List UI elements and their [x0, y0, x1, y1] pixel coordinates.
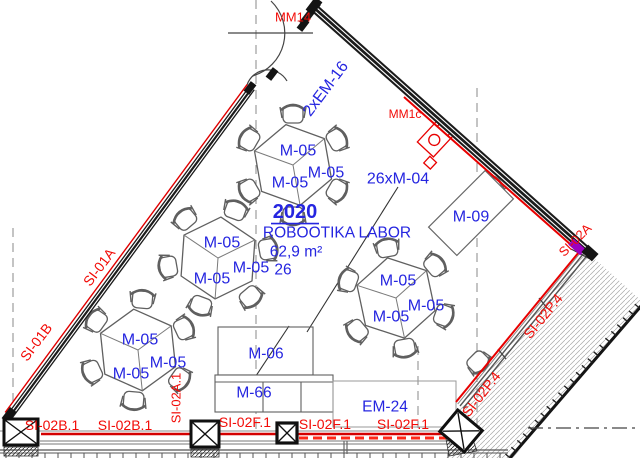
label-m-05: M-05 — [373, 309, 410, 326]
floor-plan-svg: MM142xEM-16MM1cM-05M-05M-0526xM-04M-0920… — [0, 0, 640, 458]
chair — [171, 313, 198, 344]
label-si-02f-1: SI-02F.1 — [299, 416, 351, 432]
label-m-09: M-09 — [453, 209, 490, 226]
label-m-06: M-06 — [248, 346, 283, 363]
label-m-05: M-05 — [113, 366, 150, 383]
label-si-02a-1: SI-02A.1 — [169, 373, 184, 424]
chair — [129, 289, 156, 309]
label-26: 26 — [274, 262, 291, 279]
cabinet-m66 — [215, 375, 333, 412]
label-m-05: M-05 — [233, 260, 270, 277]
label-m-66: M-66 — [236, 385, 271, 402]
label-si-02f-1: SI-02F.1 — [377, 416, 429, 432]
label-2020: 2020 — [273, 201, 318, 223]
label-m-05: M-05 — [150, 355, 187, 372]
label-26xm-04: 26xM-04 — [367, 171, 429, 188]
label-m-05: M-05 — [380, 273, 417, 290]
chair — [78, 356, 105, 387]
label-si-02f-1: SI-02F.1 — [219, 414, 271, 430]
label-mm14: MM14 — [275, 10, 311, 25]
bottom-wall — [0, 431, 508, 454]
label-mm1c: MM1c — [389, 107, 422, 121]
label-m-05: M-05 — [408, 298, 445, 315]
label-m-05: M-05 — [194, 271, 231, 288]
label-62-9-m-: 62,9 m² — [270, 244, 323, 261]
label-m-05: M-05 — [272, 175, 309, 192]
chair — [335, 265, 361, 296]
label-m-05: M-05 — [204, 235, 241, 252]
label-2xem-16: 2xEM-16 — [300, 58, 352, 119]
chair — [390, 337, 419, 359]
label-robootika-labor: ROBOOTIKA LABOR — [263, 225, 411, 242]
label-si-02b-1: SI-02B.1 — [98, 417, 153, 433]
chair — [120, 391, 147, 411]
label-m-05: M-05 — [122, 332, 159, 349]
label-m-05: M-05 — [280, 143, 317, 160]
label-m-05: M-05 — [308, 165, 345, 182]
label-em-24: EM-24 — [362, 399, 408, 416]
floor-plan: MM142xEM-16MM1cM-05M-05M-0526xM-04M-0920… — [0, 0, 640, 458]
facade-ticks — [6, 453, 500, 458]
label-si-02b-1: SI-02B.1 — [25, 417, 80, 433]
chair — [157, 252, 179, 281]
